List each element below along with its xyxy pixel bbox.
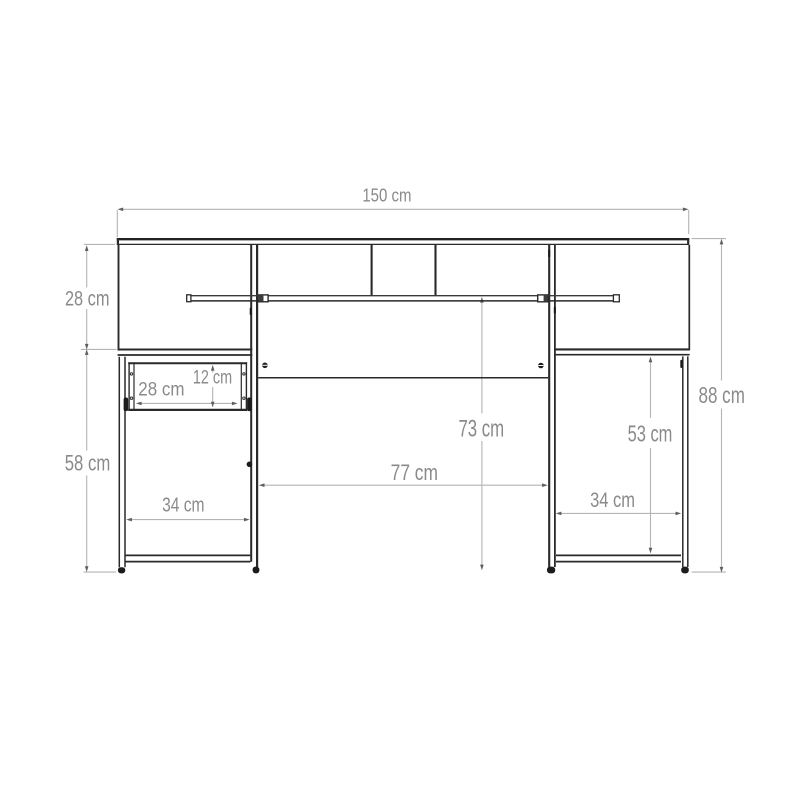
svg-text:150 cm: 150 cm xyxy=(362,185,411,206)
svg-text:34 cm: 34 cm xyxy=(590,488,635,511)
svg-text:77 cm: 77 cm xyxy=(391,461,438,485)
svg-text:28 cm: 28 cm xyxy=(138,377,184,399)
svg-text:53 cm: 53 cm xyxy=(628,422,673,447)
svg-text:34 cm: 34 cm xyxy=(162,493,204,515)
svg-text:73 cm: 73 cm xyxy=(458,416,504,443)
svg-text:58 cm: 58 cm xyxy=(65,451,110,476)
svg-text:88 cm: 88 cm xyxy=(699,384,745,409)
svg-text:28 cm: 28 cm xyxy=(65,288,109,312)
svg-text:12 cm: 12 cm xyxy=(193,365,232,388)
